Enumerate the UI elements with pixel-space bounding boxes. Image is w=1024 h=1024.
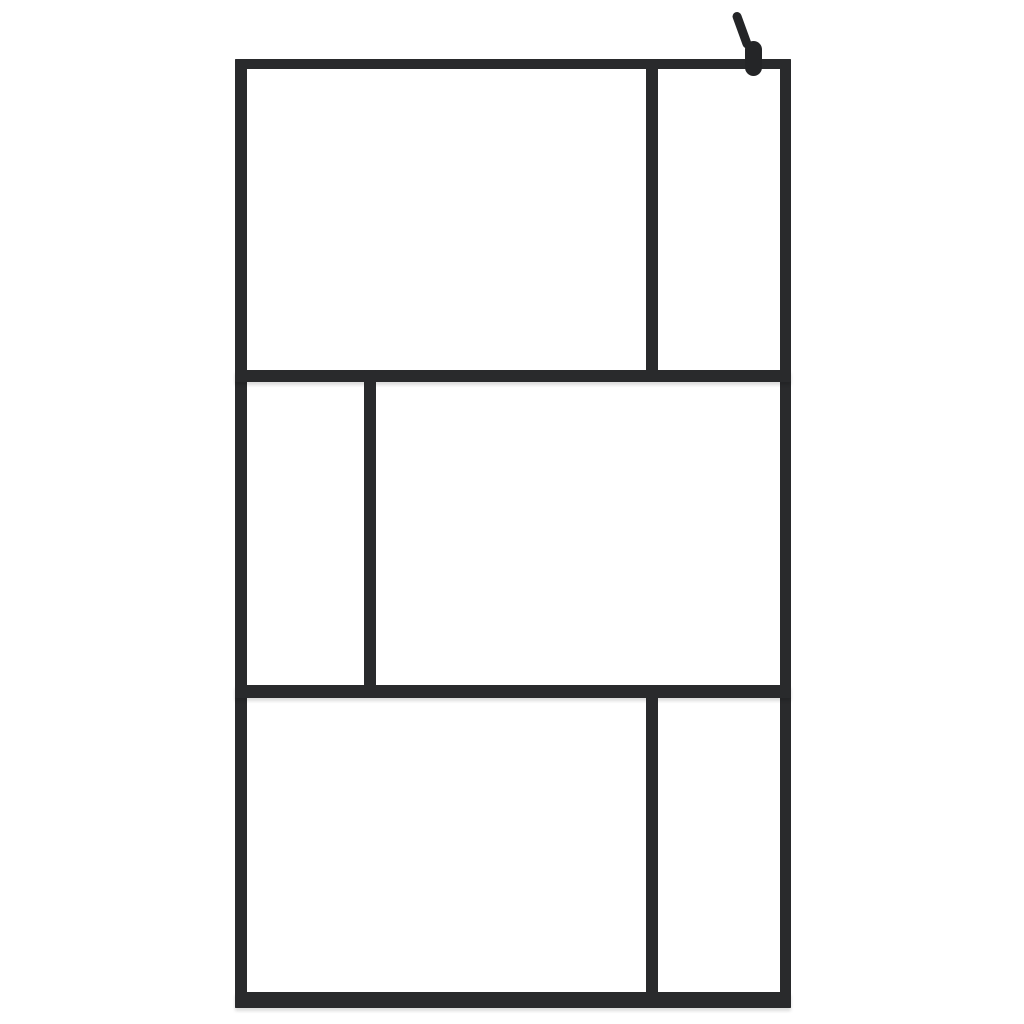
frame-upper-crossbar xyxy=(235,370,791,382)
frame-left-stile xyxy=(235,59,247,1008)
wall-mount-base-icon xyxy=(745,41,762,76)
glass-pane-middle-right xyxy=(376,382,780,685)
shower-screen-frame xyxy=(235,59,791,1008)
frame-lower-crossbar xyxy=(235,685,791,698)
glass-pane-top-left xyxy=(247,69,646,370)
frame-bottom-mullion xyxy=(646,685,658,1008)
glass-pane-top-right xyxy=(658,69,780,370)
frame-top-mullion xyxy=(646,59,658,382)
frame-right-stile xyxy=(780,59,791,1008)
glass-pane-bottom-right xyxy=(658,698,780,992)
frame-top-rail xyxy=(235,59,791,69)
frame-middle-mullion xyxy=(364,370,376,698)
product-photo-shower-screen xyxy=(0,0,1024,1024)
glass-pane-bottom-left xyxy=(247,698,646,992)
frame-bottom-rail xyxy=(235,992,791,1008)
glass-pane-middle-left xyxy=(247,382,364,685)
